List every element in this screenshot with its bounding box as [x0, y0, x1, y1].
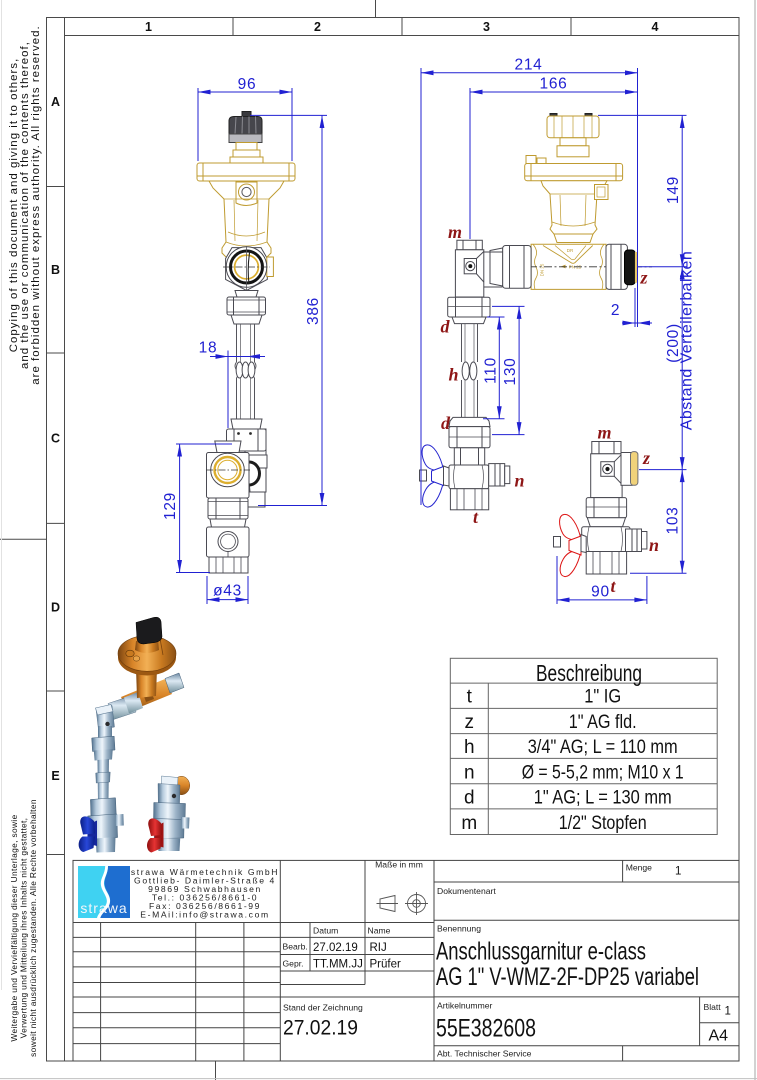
svg-text:27.02.19: 27.02.19 [283, 1016, 358, 1040]
svg-text:m: m [448, 222, 462, 242]
svg-text:d: d [441, 317, 451, 337]
svg-text:DR: DR [567, 248, 574, 253]
svg-text:Name: Name [368, 926, 391, 936]
svg-text:TT.MM.JJ: TT.MM.JJ [313, 959, 363, 971]
svg-text:m: m [597, 423, 611, 443]
svg-text:n: n [514, 471, 524, 491]
svg-text:d: d [464, 788, 475, 809]
svg-text:n: n [464, 762, 475, 783]
svg-text:Datum: Datum [313, 926, 338, 936]
svg-text:are forbidden without express: are forbidden without express authority.… [30, 25, 42, 385]
svg-text:Benennung: Benennung [437, 924, 481, 934]
svg-text:RIJ: RIJ [370, 942, 387, 954]
svg-text:Abstand Verteilerbalken: Abstand Verteilerbalken [679, 251, 696, 430]
svg-text:d: d [441, 413, 451, 433]
svg-text:149: 149 [665, 176, 682, 204]
svg-text:n: n [649, 535, 659, 555]
svg-text:Ø = 5-5,2 mm; M10 x 1: Ø = 5-5,2 mm; M10 x 1 [522, 762, 684, 783]
svg-text:E: E [51, 769, 59, 783]
svg-text:A4: A4 [709, 1028, 729, 1045]
svg-text:2: 2 [611, 302, 620, 319]
svg-text:3/4" AG; L = 110 mm: 3/4" AG; L = 110 mm [528, 737, 678, 758]
svg-text:4: 4 [652, 20, 659, 34]
svg-text:C: C [51, 432, 60, 446]
svg-text:166: 166 [540, 76, 568, 93]
svg-text:Prüfer: Prüfer [370, 959, 401, 971]
svg-text:1/2" Stopfen: 1/2" Stopfen [559, 813, 647, 834]
svg-text:18: 18 [199, 340, 218, 357]
svg-text:129: 129 [162, 492, 179, 520]
svg-text:AG 1" V-WMZ-2F-DP25 variabel: AG 1" V-WMZ-2F-DP25 variabel [436, 963, 699, 991]
svg-text:103: 103 [665, 507, 682, 535]
svg-text:1" IG: 1" IG [584, 687, 621, 708]
svg-text:Stand der Zeichnung: Stand der Zeichnung [283, 1003, 363, 1013]
svg-text:m: m [461, 813, 477, 834]
svg-text:386: 386 [305, 297, 322, 325]
svg-text:Weitergabe und Vervielfältigun: Weitergabe und Vervielfältigung dieser U… [9, 814, 19, 1041]
svg-text:1: 1 [145, 20, 152, 34]
svg-text:214: 214 [515, 57, 543, 74]
svg-text:Bearb.: Bearb. [283, 942, 308, 952]
svg-text:27.02.19: 27.02.19 [313, 942, 358, 954]
svg-text:strawa: strawa [80, 900, 127, 916]
svg-text:Menge: Menge [626, 863, 652, 873]
svg-text:1" AG fld.: 1" AG fld. [569, 712, 637, 733]
svg-text:110: 110 [483, 357, 500, 384]
svg-text:t: t [467, 687, 473, 708]
svg-text:soweit nicht ausdrücklich zuge: soweit nicht ausdrücklich zugestanden. A… [28, 799, 38, 1057]
svg-text:1: 1 [675, 866, 681, 878]
svg-text:Beschreibung: Beschreibung [536, 660, 642, 686]
svg-text:3: 3 [483, 20, 490, 34]
svg-text:130: 130 [502, 358, 519, 386]
svg-text:Gepr.: Gepr. [283, 959, 304, 969]
svg-text:D: D [51, 601, 60, 615]
svg-text:z: z [465, 712, 475, 733]
svg-text:Abt. Technischer Service: Abt. Technischer Service [437, 1049, 532, 1059]
svg-text:96: 96 [238, 76, 257, 93]
svg-text:Maße in mm: Maße in mm [375, 860, 423, 870]
svg-text:h: h [448, 365, 458, 385]
svg-text:z: z [639, 268, 647, 288]
svg-text:z: z [642, 448, 650, 468]
svg-text:h: h [464, 737, 475, 758]
svg-text:90: 90 [591, 584, 610, 601]
svg-text:Dokumentenart: Dokumentenart [437, 886, 496, 896]
svg-text:DN 25: DN 25 [540, 263, 545, 276]
svg-text:ø43: ø43 [213, 583, 242, 600]
svg-text:A: A [51, 95, 60, 109]
svg-text:Anschlussgarnitur e-class: Anschlussgarnitur e-class [436, 938, 646, 966]
svg-text:Blatt: Blatt [704, 1002, 722, 1012]
svg-text:B: B [51, 263, 60, 277]
svg-text:Verwertung und Mitteilung ihre: Verwertung und Mitteilung ihres Inhalts … [19, 818, 29, 1039]
svg-text:Artikelnummer: Artikelnummer [437, 1000, 493, 1010]
svg-text:1: 1 [725, 1006, 731, 1018]
svg-text:2: 2 [314, 20, 321, 34]
svg-text:55E382608: 55E382608 [436, 1015, 536, 1043]
svg-text:E-MAil:info@strawa.com: E-MAil:info@strawa.com [140, 910, 269, 920]
svg-text:1" AG; L = 130 mm: 1" AG; L = 130 mm [534, 788, 672, 809]
